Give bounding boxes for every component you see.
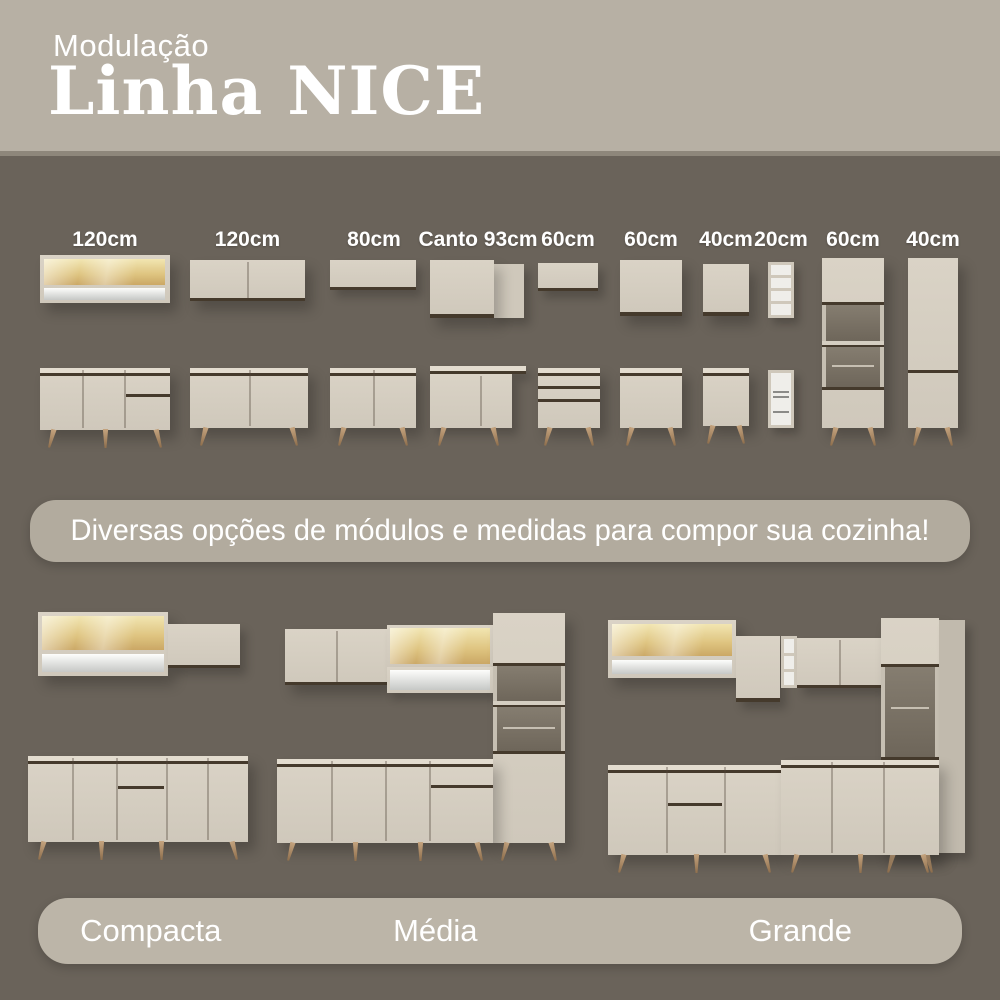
kitchen-label-grande: Grande — [749, 913, 852, 949]
module-size-label: 120cm — [215, 228, 280, 252]
modules-grid: 120cm 120cm — [0, 228, 1000, 480]
module-image-shelf-20-top — [768, 262, 794, 318]
module-image-base-120-2d — [190, 368, 308, 428]
module-image-base-corner-top — [430, 366, 526, 374]
module-column-2: 120cm — [190, 228, 305, 480]
module-size-label: 40cm — [699, 228, 753, 252]
kitchen-label-compacta: Compacta — [80, 913, 221, 949]
module-column-4: Canto 93cm — [430, 228, 526, 480]
kitchen-media-image — [277, 603, 577, 875]
poster: Modulação Linha NICE 120cm 120cm — [0, 0, 1000, 1000]
module-column-9: 60cm — [822, 228, 884, 480]
size-options-banner: Compacta Média Grande — [38, 898, 962, 964]
module-image-base-80 — [330, 368, 416, 428]
module-image-wall-120 — [190, 260, 305, 301]
module-column-3: 80cm — [330, 228, 418, 480]
header: Modulação Linha NICE — [0, 0, 1000, 156]
module-column-6: 60cm — [620, 228, 682, 480]
module-image-base-60 — [620, 368, 682, 428]
tagline-banner: Diversas opções de módulos e medidas par… — [30, 500, 970, 562]
module-image-tower-60 — [822, 258, 884, 428]
module-size-label: 60cm — [624, 228, 678, 252]
module-size-label: 120cm — [72, 228, 137, 252]
module-size-label: 40cm — [906, 228, 960, 252]
tagline-text: Diversas opções de módulos e medidas par… — [44, 514, 956, 548]
module-image-wall-80 — [330, 260, 416, 290]
kitchen-compacta-image — [28, 608, 264, 880]
module-column-1: 120cm — [40, 228, 170, 480]
module-image-wall-60-low — [538, 263, 598, 291]
module-size-label: 60cm — [541, 228, 595, 252]
module-image-wall-40 — [703, 264, 749, 316]
module-column-8: 20cm — [768, 228, 794, 480]
module-size-label: 80cm — [347, 228, 401, 252]
module-column-5: 60cm — [538, 228, 598, 480]
module-image-wall-60 — [620, 260, 682, 316]
module-column-10: 40cm — [908, 228, 958, 480]
module-image-shelf-20-bottom — [768, 370, 794, 428]
module-image-base-40 — [703, 368, 749, 426]
module-size-label: 20cm — [754, 228, 808, 252]
module-image-base-60-drawers — [538, 368, 600, 428]
module-size-label: 60cm — [826, 228, 880, 252]
module-image-base-120 — [40, 368, 170, 430]
module-column-7: 40cm — [703, 228, 749, 480]
module-image-tower-40 — [908, 258, 958, 428]
page-title: Linha NICE — [48, 56, 485, 126]
kitchen-label-media: Média — [393, 913, 477, 949]
kitchen-grande-image — [600, 600, 992, 880]
module-image-wall-corner — [430, 260, 494, 318]
module-image-wall-glass-120 — [40, 255, 170, 303]
module-size-label: Canto 93cm — [418, 228, 537, 252]
module-image-base-corner — [430, 374, 512, 428]
